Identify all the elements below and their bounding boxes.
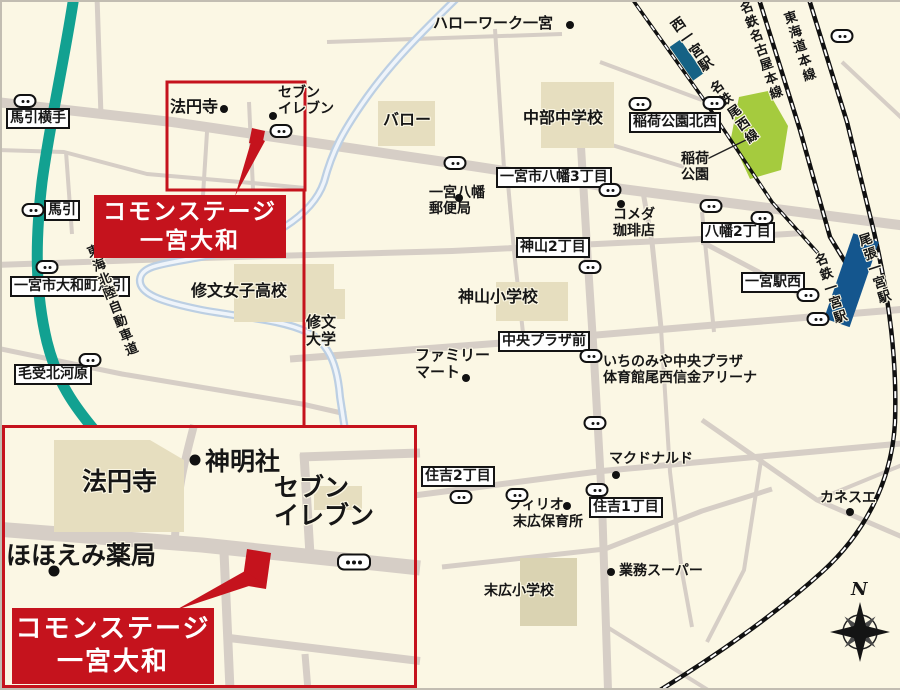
mcdonalds-label: マクドナルド [609, 452, 693, 468]
owari-ichinomiya-station-label: 尾張一宮駅 [854, 232, 891, 308]
bus-stop-icon [506, 488, 529, 502]
dot-hello-work [566, 21, 574, 29]
bus-stop-hachiman2-label: 八幡2丁目 [701, 222, 775, 243]
bus-stop-icon [599, 183, 622, 197]
bus-stop-kamiyama2-label: 神山2丁目 [516, 237, 590, 258]
inari-park-label: 稲荷 公園 [681, 152, 709, 183]
bus-stop-icon [584, 416, 607, 430]
bus-stop-sumiyoshi1-label: 住吉1丁目 [589, 497, 663, 518]
shubun-university-label: 修文 大学 [306, 314, 336, 348]
dot-hachiman-post-office [455, 194, 463, 202]
bus-stop-sumiyoshi2-label: 住吉2丁目 [421, 466, 495, 487]
bus-stop-menjo-kitagawara-label: 毛受北河原 [14, 364, 92, 385]
seven-eleven-label: セブン イレブン [278, 86, 334, 117]
bus-stop-icon [579, 260, 602, 274]
main-site-callout: コモンステージ 一宮大和 [94, 195, 286, 258]
bus-stop-icon [700, 199, 723, 213]
hoenji-temple-label: 法円寺 [170, 98, 218, 116]
ichinomiya-chuo-plaza-arena-label: いちのみや中央プラザ 体育館尾西信金アリーナ [603, 355, 757, 386]
bus-stop-icon [580, 349, 603, 363]
compass-north-letter: N [851, 580, 867, 600]
dot-family-mart [462, 374, 470, 382]
kamiyama-elementary-label: 神山小学校 [458, 288, 538, 306]
tokai-hokuriku-expressway-label: 東海北陸自動車道 [82, 243, 139, 360]
inset-site-callout-line1: コモンステージ [12, 613, 214, 646]
bus-stop-icon [270, 124, 293, 138]
bus-stop-umabiki-label: 馬引 [44, 200, 80, 221]
bus-stop-ichinomiya-eki-nishi-label: 一宮駅西 [741, 272, 805, 293]
dot-seven-eleven [269, 112, 277, 120]
bus-stop-icon [79, 353, 102, 367]
kanesue-label: カネスエ [820, 491, 876, 507]
bus-stop-icon [629, 97, 652, 111]
dot-komeda [617, 200, 625, 208]
bus-stop-icon [444, 156, 467, 170]
bus-stop-icon [22, 203, 45, 217]
inset-site-callout-line2: 一宮大和 [12, 646, 214, 679]
dot-hoenji [220, 105, 228, 113]
inset-hoenji-temple-label: 法円寺 [82, 468, 157, 496]
chubu-junior-high-label: 中部中学校 [523, 109, 603, 127]
hello-work-ichinomiya-label: ハローワーク一宮 [433, 15, 553, 32]
bus-stop-icon [14, 94, 37, 108]
main-site-callout-line2: 一宮大和 [94, 227, 286, 256]
bus-stop-icon [797, 288, 820, 302]
label-layer: 馬引横手馬引一宮市大和町馬引毛受北河原一宮市八幡3丁目神山2丁目中央プラザ前八幡… [2, 2, 900, 688]
suehiro-nursery-label: 末広保育所 [513, 515, 583, 531]
dot-gyomu-super [607, 568, 615, 576]
dot-inset-hohoemi [49, 566, 60, 577]
suehiro-elementary-label: 末広小学校 [484, 584, 554, 600]
bus-stop-umabiki-yokote-label: 馬引横手 [6, 108, 70, 129]
bus-stop-icon [831, 29, 854, 43]
nishi-ichinomiya-station-label: 西一宮駅 [666, 15, 716, 76]
bus-stop-icon [807, 312, 830, 326]
komeda-coffee-label: コメダ 珈琲店 [613, 208, 655, 239]
bus-stop-icon [450, 490, 473, 504]
bus-stop-icon [703, 96, 726, 110]
gyomu-super-label: 業務スーパー [619, 564, 703, 580]
bus-stop-inari-koen-hokusei-label: 稲荷公園北西 [629, 112, 721, 133]
access-map: 馬引横手馬引一宮市大和町馬引毛受北河原一宮市八幡3丁目神山2丁目中央プラザ前八幡… [0, 0, 900, 690]
inset-seven-eleven-label: セブン イレブン [274, 474, 374, 530]
bus-stop-icon [337, 554, 371, 571]
tokaido-main-line-label: 東海道本線 [779, 10, 816, 86]
inset-site-callout: コモンステージ 一宮大和 [12, 608, 214, 684]
inset-shinmeisha-shrine-label: 神明社 [205, 448, 280, 476]
bus-stop-icon [36, 260, 59, 274]
family-mart-label: ファミリー マート [415, 347, 490, 381]
main-site-callout-line1: コモンステージ [94, 198, 286, 227]
meitetsu-nagoya-main-line-label: 名鉄名古屋本線 [735, 0, 783, 103]
bus-stop-icon [586, 483, 609, 497]
inset-hohoemi-pharmacy-label: ほほえみ薬局 [6, 542, 156, 570]
dot-filio [563, 502, 571, 510]
bus-stop-hachiman3-label: 一宮市八幡3丁目 [496, 167, 612, 188]
shubun-girls-high-label: 修文女子高校 [191, 282, 287, 300]
valor-label: バロー [383, 111, 431, 129]
dot-inset-shinmeisha [190, 455, 201, 466]
bus-stop-chuo-plaza-mae-label: 中央プラザ前 [498, 331, 590, 352]
dot-mcdonalds [612, 471, 620, 479]
dot-kanesue [846, 508, 854, 516]
bus-stop-icon [751, 211, 774, 225]
